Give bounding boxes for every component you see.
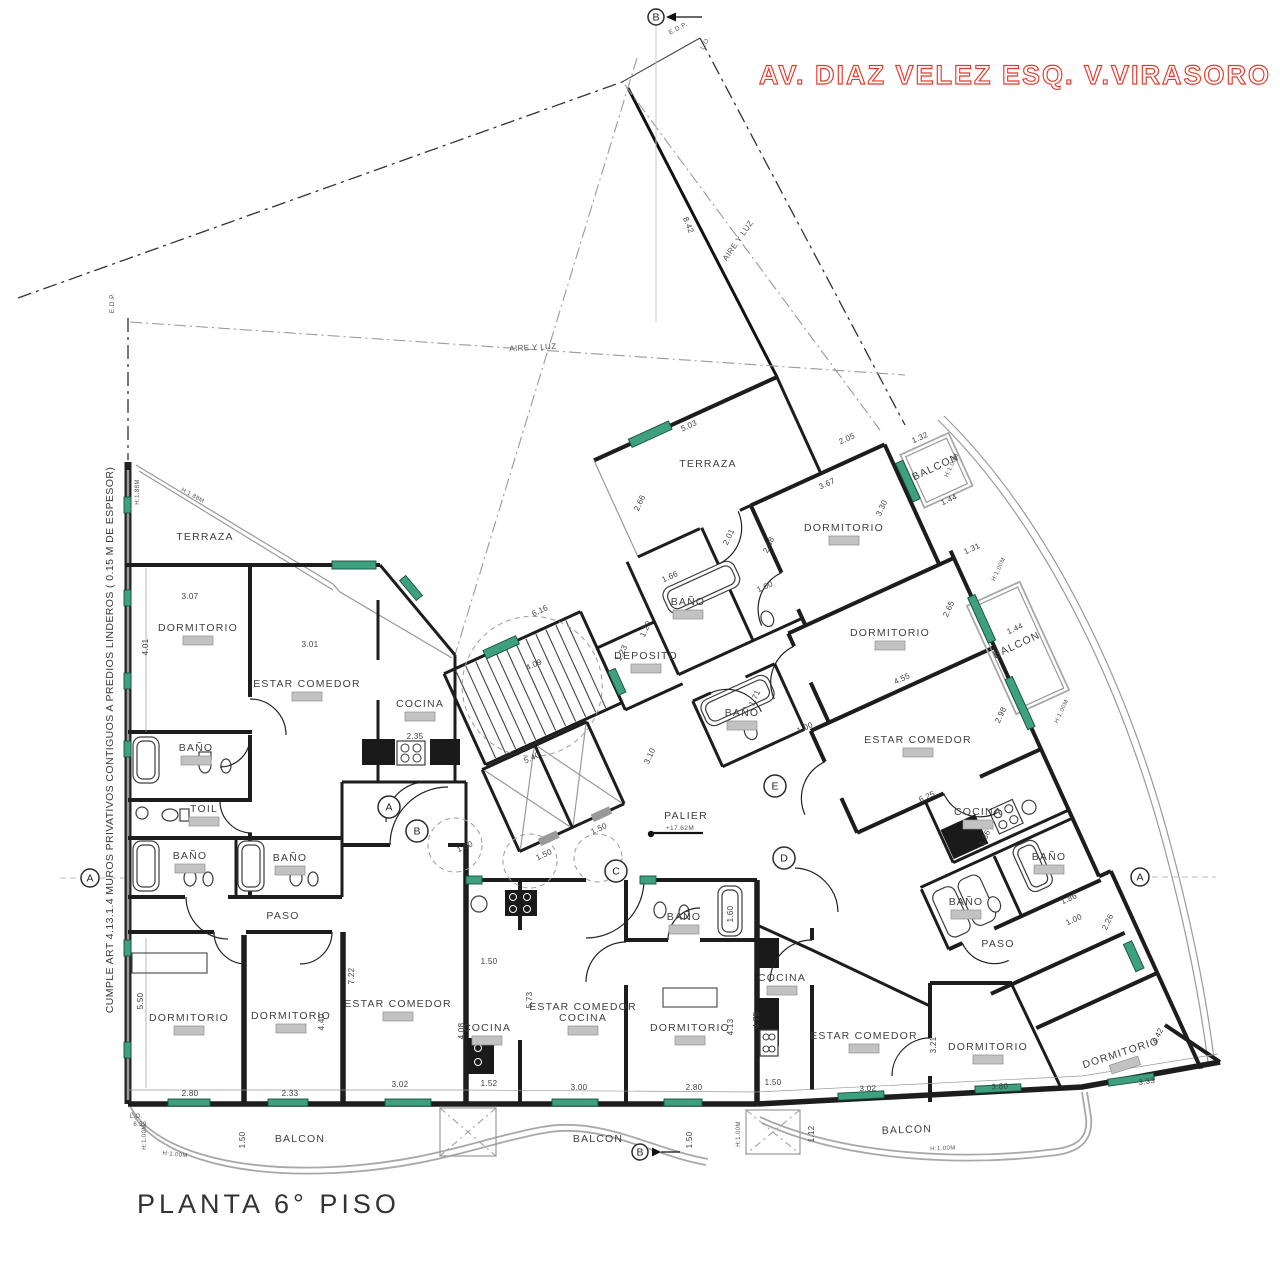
- room-area-tag: [973, 1055, 1003, 1064]
- dimension-label: 1.52: [481, 1079, 498, 1088]
- dimension-label: 1.12: [807, 1125, 816, 1142]
- room-label: DORMITORIO: [149, 1012, 229, 1035]
- dimension-label: 2.26: [1100, 912, 1115, 931]
- room-label: PALIER: [664, 810, 708, 822]
- dimension-label: 3.21: [929, 1036, 938, 1053]
- svg-text:DORMITORIO: DORMITORIO: [804, 522, 884, 534]
- section-marker-a: A: [81, 869, 99, 887]
- room-label: ESTAR COMEDOR: [253, 678, 361, 701]
- room-area-tag: [181, 756, 211, 765]
- site-label: H:1.00M: [991, 557, 1007, 583]
- dimension-label: 1.00: [1064, 912, 1083, 927]
- dimension-label: 4.08: [457, 1022, 466, 1039]
- dimension-label: 1.00: [755, 579, 774, 594]
- room-area-tag: [631, 664, 661, 673]
- dimension-label: 1.66: [660, 569, 679, 584]
- room-label: PASO: [266, 910, 299, 922]
- svg-text:DORMITORIO: DORMITORIO: [948, 1041, 1028, 1053]
- site-label: H:1.88M: [180, 487, 205, 505]
- svg-text:COCINA: COCINA: [396, 698, 444, 710]
- svg-text:BAÑO: BAÑO: [273, 851, 308, 864]
- labels-layer: TERRAZADORMITORIOESTAR COMEDORCOCINABAÑO…: [149, 451, 1164, 1145]
- room-area-tag: [183, 636, 213, 645]
- room-label: ESTAR COMEDOR: [344, 998, 452, 1021]
- dimension-label: 5.73: [525, 991, 534, 1008]
- svg-text:DORMITORIO: DORMITORIO: [149, 1012, 229, 1024]
- site-label: L.O.: [130, 1114, 143, 1120]
- room-label: BALCON: [882, 1123, 933, 1137]
- room-label: BAÑO: [173, 849, 208, 873]
- room-area-tag: [383, 1012, 413, 1021]
- site-label: E.D.P.: [109, 293, 116, 313]
- svg-text:B: B: [413, 826, 420, 838]
- room-label: BAÑO: [273, 851, 308, 875]
- dimension-label: 2.08: [761, 535, 776, 554]
- plan-title: PLANTA 6° PISO: [137, 1189, 400, 1219]
- dimension-label: 4.01: [141, 638, 150, 655]
- floorplan-page: TERRAZADORMITORIOESTAR COMEDORCOCINABAÑO…: [0, 0, 1280, 1267]
- section-marker-b: B: [632, 1144, 680, 1160]
- room-area-tag: [405, 712, 435, 721]
- room-label: DORMITORIO: [804, 522, 884, 545]
- room-label: BAÑO: [725, 706, 760, 730]
- room-label: BAÑO: [179, 741, 214, 765]
- section-marker-a: A: [1131, 868, 1149, 886]
- room-area-tag: [175, 864, 205, 873]
- dimension-label: 4.09: [524, 657, 543, 672]
- svg-text:BAÑO: BAÑO: [949, 895, 984, 908]
- svg-text:ESTAR COMEDOR: ESTAR COMEDOR: [810, 1030, 918, 1042]
- room-area-tag: [875, 641, 905, 650]
- room-label: DORMITORIO: [850, 627, 930, 650]
- room-label: COCINA: [396, 698, 444, 721]
- section-marker-c: C: [605, 860, 627, 882]
- room-label: BAÑO: [1032, 850, 1067, 874]
- room-area-tag: [568, 1026, 598, 1035]
- lot-lines-layer: [18, 26, 1216, 1062]
- svg-text:TERRAZA: TERRAZA: [679, 458, 736, 470]
- room-area-tag: [276, 1024, 306, 1033]
- compliance-note: CUMPLE ART 4.13.1.4 MUROS PRIVATIVOS CON…: [104, 467, 116, 1014]
- dimension-label: 1.50: [765, 1078, 782, 1087]
- dimension-label: 8.42: [681, 216, 696, 235]
- room-label: TOIL: [189, 803, 219, 826]
- room-label: BALCON: [275, 1133, 325, 1145]
- svg-text:ESTAR COMEDOR: ESTAR COMEDOR: [864, 734, 972, 746]
- svg-text:A: A: [86, 873, 93, 885]
- dimension-label: 1.50: [238, 1131, 247, 1148]
- walls-ne-clip: [383, 316, 1249, 1267]
- svg-text:BALCON: BALCON: [573, 1133, 623, 1145]
- dimension-label: 2.01: [721, 527, 736, 546]
- room-area-tag: [275, 866, 305, 875]
- svg-text:TERRAZA: TERRAZA: [176, 531, 233, 543]
- dimension-label: 4.75: [752, 1011, 761, 1028]
- room-label: DORMITORIO: [948, 1041, 1028, 1064]
- floor-plan-svg: TERRAZADORMITORIOESTAR COMEDORCOCINABAÑO…: [0, 0, 1280, 1267]
- room-area-tag: [829, 536, 859, 545]
- svg-text:B: B: [636, 1147, 643, 1159]
- site-label: AIRE Y LUZ: [721, 219, 755, 263]
- room-area-tag: [963, 820, 993, 829]
- svg-text:DORMITORIO: DORMITORIO: [850, 627, 930, 639]
- dimension-label: 4.42: [1150, 1026, 1165, 1045]
- svg-text:E: E: [771, 781, 778, 793]
- dimension-label: 2.80: [686, 1083, 703, 1092]
- room-label: BALCON: [991, 629, 1042, 661]
- room-label: TERRAZA: [679, 458, 736, 470]
- svg-text:DORMITORIO: DORMITORIO: [650, 1022, 730, 1034]
- walls-ne-layer: [383, 316, 1249, 1267]
- svg-text:C: C: [612, 866, 620, 878]
- room-label: BAÑO: [671, 595, 706, 619]
- section-marker-b: B: [648, 9, 702, 25]
- svg-text:BAÑO: BAÑO: [667, 910, 702, 923]
- room-area-tag: [903, 748, 933, 757]
- dimension-label: 7.22: [347, 967, 356, 984]
- dimension-label: 1.50: [685, 1131, 694, 1148]
- room-label: COCINA: [758, 972, 806, 995]
- svg-text:BALCON: BALCON: [991, 629, 1042, 661]
- dimension-label: 3.67: [817, 476, 836, 491]
- dimension-label: 1.50: [481, 957, 498, 966]
- dimension-label: 4.40: [317, 1013, 326, 1030]
- dimension-label: 6.16: [530, 603, 549, 618]
- room-label: PASO: [981, 938, 1014, 950]
- room-label: BALCON: [573, 1133, 623, 1145]
- markers-layer: BABCEDAAB: [81, 9, 1149, 1160]
- dimension-label: 2.33: [282, 1089, 299, 1098]
- site-labels: AIRE Y LUZAIRE Y LUZE.D.P.L.O.E.D.P.L.O.…: [109, 21, 1070, 1160]
- svg-text:PASO: PASO: [266, 910, 299, 922]
- svg-text:COCINA: COCINA: [758, 972, 806, 984]
- svg-text:PASO: PASO: [981, 938, 1014, 950]
- room-area-tag: [174, 1026, 204, 1035]
- room-area-tag: [189, 817, 219, 826]
- dimension-label: 2.80: [182, 1089, 199, 1098]
- site-label: H:1.00M: [736, 1121, 742, 1146]
- room-label: ESTAR COMEDORCOCINA: [529, 1001, 637, 1035]
- dimension-label: 2.35: [407, 732, 424, 741]
- dimension-label: 3.30: [874, 498, 889, 517]
- dimension-label: 2.05: [837, 431, 856, 446]
- svg-text:BALCON: BALCON: [882, 1123, 933, 1137]
- svg-text:D: D: [780, 853, 788, 865]
- svg-text:BALCON: BALCON: [275, 1133, 325, 1145]
- section-marker-a: A: [378, 796, 400, 818]
- room-area-tag: [727, 721, 757, 730]
- dimension-label: 1.44: [1005, 621, 1024, 636]
- svg-text:PALIER: PALIER: [664, 810, 708, 822]
- site-label: +17.62M: [666, 825, 694, 832]
- room-area-tag: [767, 986, 797, 995]
- site-label: H:1.88M: [135, 479, 141, 504]
- dimension-label: 5.50: [136, 992, 145, 1009]
- room-label: BAÑO: [949, 895, 984, 919]
- svg-text:COCINA: COCINA: [954, 806, 1002, 818]
- room-area-tag: [951, 910, 981, 919]
- site-label: H:1.00M: [1054, 699, 1070, 725]
- room-label: BAÑO: [667, 910, 702, 934]
- dimension-label: 4.13: [726, 1018, 735, 1035]
- dimension-label: 3.02: [392, 1080, 409, 1089]
- dimension-label: 2.98: [993, 705, 1008, 724]
- room-area-tag: [1034, 865, 1064, 874]
- street-title: AV. DIAZ VELEZ ESQ. V.VIRASORO: [759, 60, 1271, 90]
- svg-text:COCINA: COCINA: [463, 1022, 511, 1034]
- site-label: AIRE Y LUZ: [509, 342, 557, 353]
- dimension-label: 1.31: [962, 541, 981, 556]
- site-label: H:1.00M: [930, 1145, 956, 1152]
- dimension-label: 1.50: [534, 847, 553, 862]
- room-label: ESTAR COMEDOR: [810, 1030, 918, 1053]
- svg-text:DORMITORIO: DORMITORIO: [158, 622, 238, 634]
- svg-text:BAÑO: BAÑO: [173, 849, 208, 862]
- dimension-label: 3.00: [571, 1083, 588, 1092]
- dimension-label: 2.66: [632, 493, 647, 512]
- room-area-tag: [669, 925, 699, 934]
- svg-text:BAÑO: BAÑO: [179, 741, 214, 754]
- dimension-label: 3.07: [182, 592, 199, 601]
- room-label: ESTAR COMEDOR: [864, 734, 972, 757]
- dimension-label: 1.50: [589, 821, 608, 836]
- svg-text:ESTAR COMEDOR: ESTAR COMEDOR: [344, 998, 452, 1010]
- section-marker-d: D: [773, 847, 795, 869]
- site-label: L.O.: [699, 36, 712, 52]
- site-label: E.D.P.: [668, 21, 689, 37]
- room-area-tag: [292, 692, 322, 701]
- svg-text:TOIL: TOIL: [190, 803, 218, 815]
- svg-text:BAÑO: BAÑO: [1032, 850, 1067, 863]
- room-area-tag: [673, 610, 703, 619]
- dimension-label: 2.65: [941, 599, 956, 618]
- room-area-tag: [675, 1036, 705, 1045]
- site-label: H:1.00M: [162, 1151, 188, 1160]
- room-label: DORMITORIO: [650, 1022, 730, 1045]
- dimension-label: 1.60: [726, 905, 735, 922]
- dimension-label: 3.02: [859, 1084, 876, 1094]
- svg-text:ESTAR COMEDOR: ESTAR COMEDOR: [253, 678, 361, 690]
- site-label: H:1.00M: [142, 1124, 148, 1149]
- section-marker-e: E: [764, 775, 786, 797]
- dimension-label: 3.33: [1138, 1076, 1156, 1087]
- section-marker-b: B: [406, 820, 428, 842]
- dimension-label: 3.01: [302, 640, 319, 649]
- balcony-layer: [130, 465, 1091, 1174]
- dimension-label: 3.10: [642, 746, 657, 765]
- room-label: DORMITORIO: [158, 622, 238, 645]
- room-area-tag: [849, 1044, 879, 1053]
- svg-text:B: B: [652, 12, 659, 24]
- svg-text:ESTAR COMEDORCOCINA: ESTAR COMEDORCOCINA: [529, 1001, 637, 1024]
- svg-text:A: A: [385, 802, 392, 814]
- room-area-tag: [472, 1036, 502, 1045]
- svg-text:A: A: [1136, 872, 1143, 884]
- svg-text:BAÑO: BAÑO: [671, 595, 706, 608]
- dimension-label: 3.80: [991, 1082, 1008, 1092]
- room-label: TERRAZA: [176, 531, 233, 543]
